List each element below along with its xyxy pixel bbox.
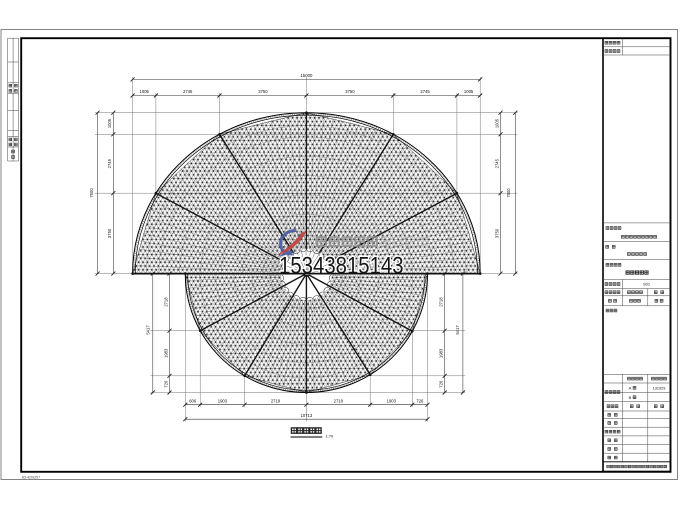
svg-text:2718: 2718 [271,398,281,403]
svg-text:A: A [629,385,632,390]
svg-text:606: 606 [189,398,197,403]
svg-text:1903: 1903 [387,398,397,403]
svg-text:B: B [629,395,632,400]
svg-text:1983: 1983 [163,348,168,358]
svg-text:1005: 1005 [107,118,112,128]
svg-text:3750: 3750 [345,89,355,94]
svg-text:1903: 1903 [218,398,228,403]
svg-text:2718: 2718 [334,398,344,403]
svg-text:15343815143: 15343815143 [279,253,404,280]
svg-text:131929: 131929 [653,386,666,390]
svg-text:2745: 2745 [107,158,112,168]
svg-text:15000: 15000 [300,73,313,78]
svg-text:1005: 1005 [140,89,150,94]
svg-text:10713: 10713 [301,413,313,418]
svg-text:7500: 7500 [506,188,511,198]
svg-text:726: 726 [439,380,444,388]
svg-text:726: 726 [416,398,424,403]
svg-text:1005: 1005 [464,89,474,94]
svg-text:S01: S01 [643,282,651,287]
svg-text:A3-420x297: A3-420x297 [22,475,40,479]
svg-text:3750: 3750 [107,228,112,238]
svg-text:2718: 2718 [439,297,444,307]
svg-text:2745: 2745 [494,158,499,168]
svg-text:1:70: 1:70 [326,433,335,438]
svg-text:726: 726 [163,380,168,388]
svg-text:3750: 3750 [494,228,499,238]
svg-text:1005: 1005 [494,118,499,128]
svg-text:1983: 1983 [439,348,444,358]
svg-text:7500: 7500 [89,188,94,198]
svg-text:5417: 5417 [455,325,460,335]
svg-text:2745: 2745 [183,89,193,94]
svg-text:3750: 3750 [258,89,268,94]
svg-text:2745: 2745 [420,89,430,94]
svg-text:2718: 2718 [163,297,168,307]
svg-text:5417: 5417 [146,325,151,335]
